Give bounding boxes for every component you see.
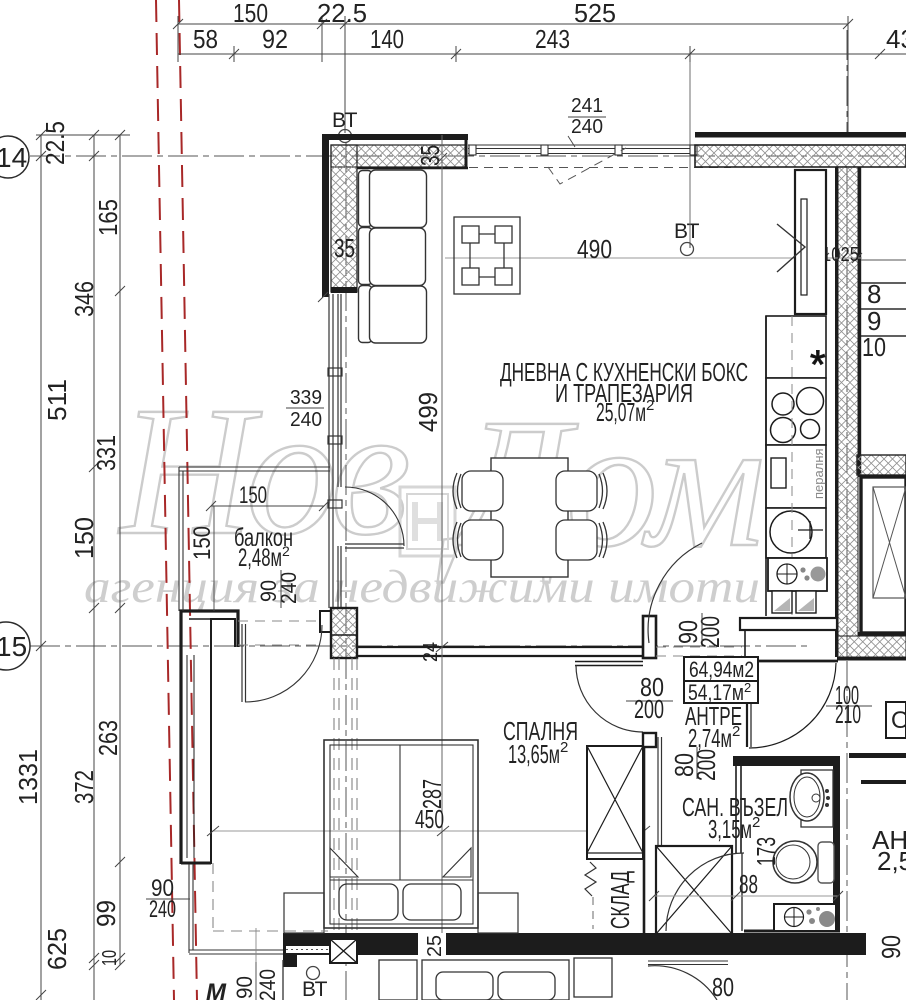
svg-text:490: 490 [577,234,612,264]
svg-text:25,07м: 25,07м [596,397,646,427]
svg-text:14: 14 [0,142,27,173]
svg-text:2: 2 [732,723,740,740]
svg-text:8: 8 [867,279,881,309]
svg-text:150: 150 [239,482,267,509]
svg-text:511: 511 [42,379,72,421]
svg-text:35: 35 [415,145,445,166]
svg-text:339: 339 [290,387,322,409]
svg-text:140: 140 [370,24,404,54]
svg-text:210: 210 [835,699,861,729]
svg-text:2: 2 [752,814,760,831]
svg-text:90: 90 [232,976,257,999]
svg-text:243: 243 [535,24,570,54]
svg-text:24: 24 [420,642,442,662]
svg-text:240: 240 [149,896,176,923]
svg-text:372: 372 [69,770,99,804]
svg-text:92: 92 [262,24,288,54]
svg-text:3,15м: 3,15м [708,814,752,844]
svg-text:263: 263 [93,720,123,756]
svg-text:ВТ: ВТ [674,220,700,243]
svg-text:525: 525 [574,0,616,28]
svg-text:2,74м: 2,74м [688,723,732,753]
svg-text:240: 240 [571,116,603,138]
svg-text:2,48м: 2,48м [238,544,282,572]
svg-text:88: 88 [739,869,758,899]
svg-text:35: 35 [334,233,355,263]
svg-text:625: 625 [42,928,72,970]
svg-text:1025: 1025 [822,244,859,266]
svg-text:СКЛАД: СКЛАД [605,871,635,929]
svg-text:2: 2 [282,543,290,559]
svg-text:13,65м: 13,65м [508,739,560,769]
svg-text:173: 173 [751,837,781,866]
svg-text:241: 241 [571,95,603,117]
svg-text:99: 99 [91,900,121,927]
svg-text:М: М [206,979,227,1000]
svg-text:пералня: пералня [811,448,826,499]
svg-text:10: 10 [862,332,886,362]
svg-text:200: 200 [691,749,721,781]
svg-text:22.5: 22.5 [40,121,70,165]
svg-text:2: 2 [744,680,751,695]
svg-text:200: 200 [634,694,664,724]
svg-text:2: 2 [560,739,568,756]
svg-text:64,94м2: 64,94м2 [689,657,754,682]
svg-text:150: 150 [189,526,216,560]
svg-text:ВТ: ВТ [302,978,328,1000]
svg-text:200: 200 [695,616,725,648]
svg-text:150: 150 [69,517,99,559]
svg-text:2,55: 2,55 [877,846,906,876]
svg-text:240: 240 [255,969,280,1000]
svg-text:О: О [891,707,906,734]
svg-text:15: 15 [0,631,27,662]
svg-text:165: 165 [93,199,123,236]
svg-text:331: 331 [91,435,121,471]
svg-text:2: 2 [646,397,654,414]
svg-text:43: 43 [886,24,906,54]
svg-text:450: 450 [415,804,444,834]
svg-text:10: 10 [99,950,121,966]
svg-text:ВТ: ВТ [332,109,358,132]
svg-text:80: 80 [712,972,734,1000]
svg-text:25: 25 [424,935,446,957]
svg-text:240: 240 [276,572,301,604]
svg-text:499: 499 [413,392,443,432]
svg-text:1331: 1331 [13,749,43,805]
svg-text:90: 90 [876,935,906,959]
svg-text:58: 58 [193,24,218,54]
svg-text:22.5: 22.5 [317,0,367,28]
svg-text:346: 346 [69,281,99,317]
svg-text:240: 240 [290,409,322,431]
